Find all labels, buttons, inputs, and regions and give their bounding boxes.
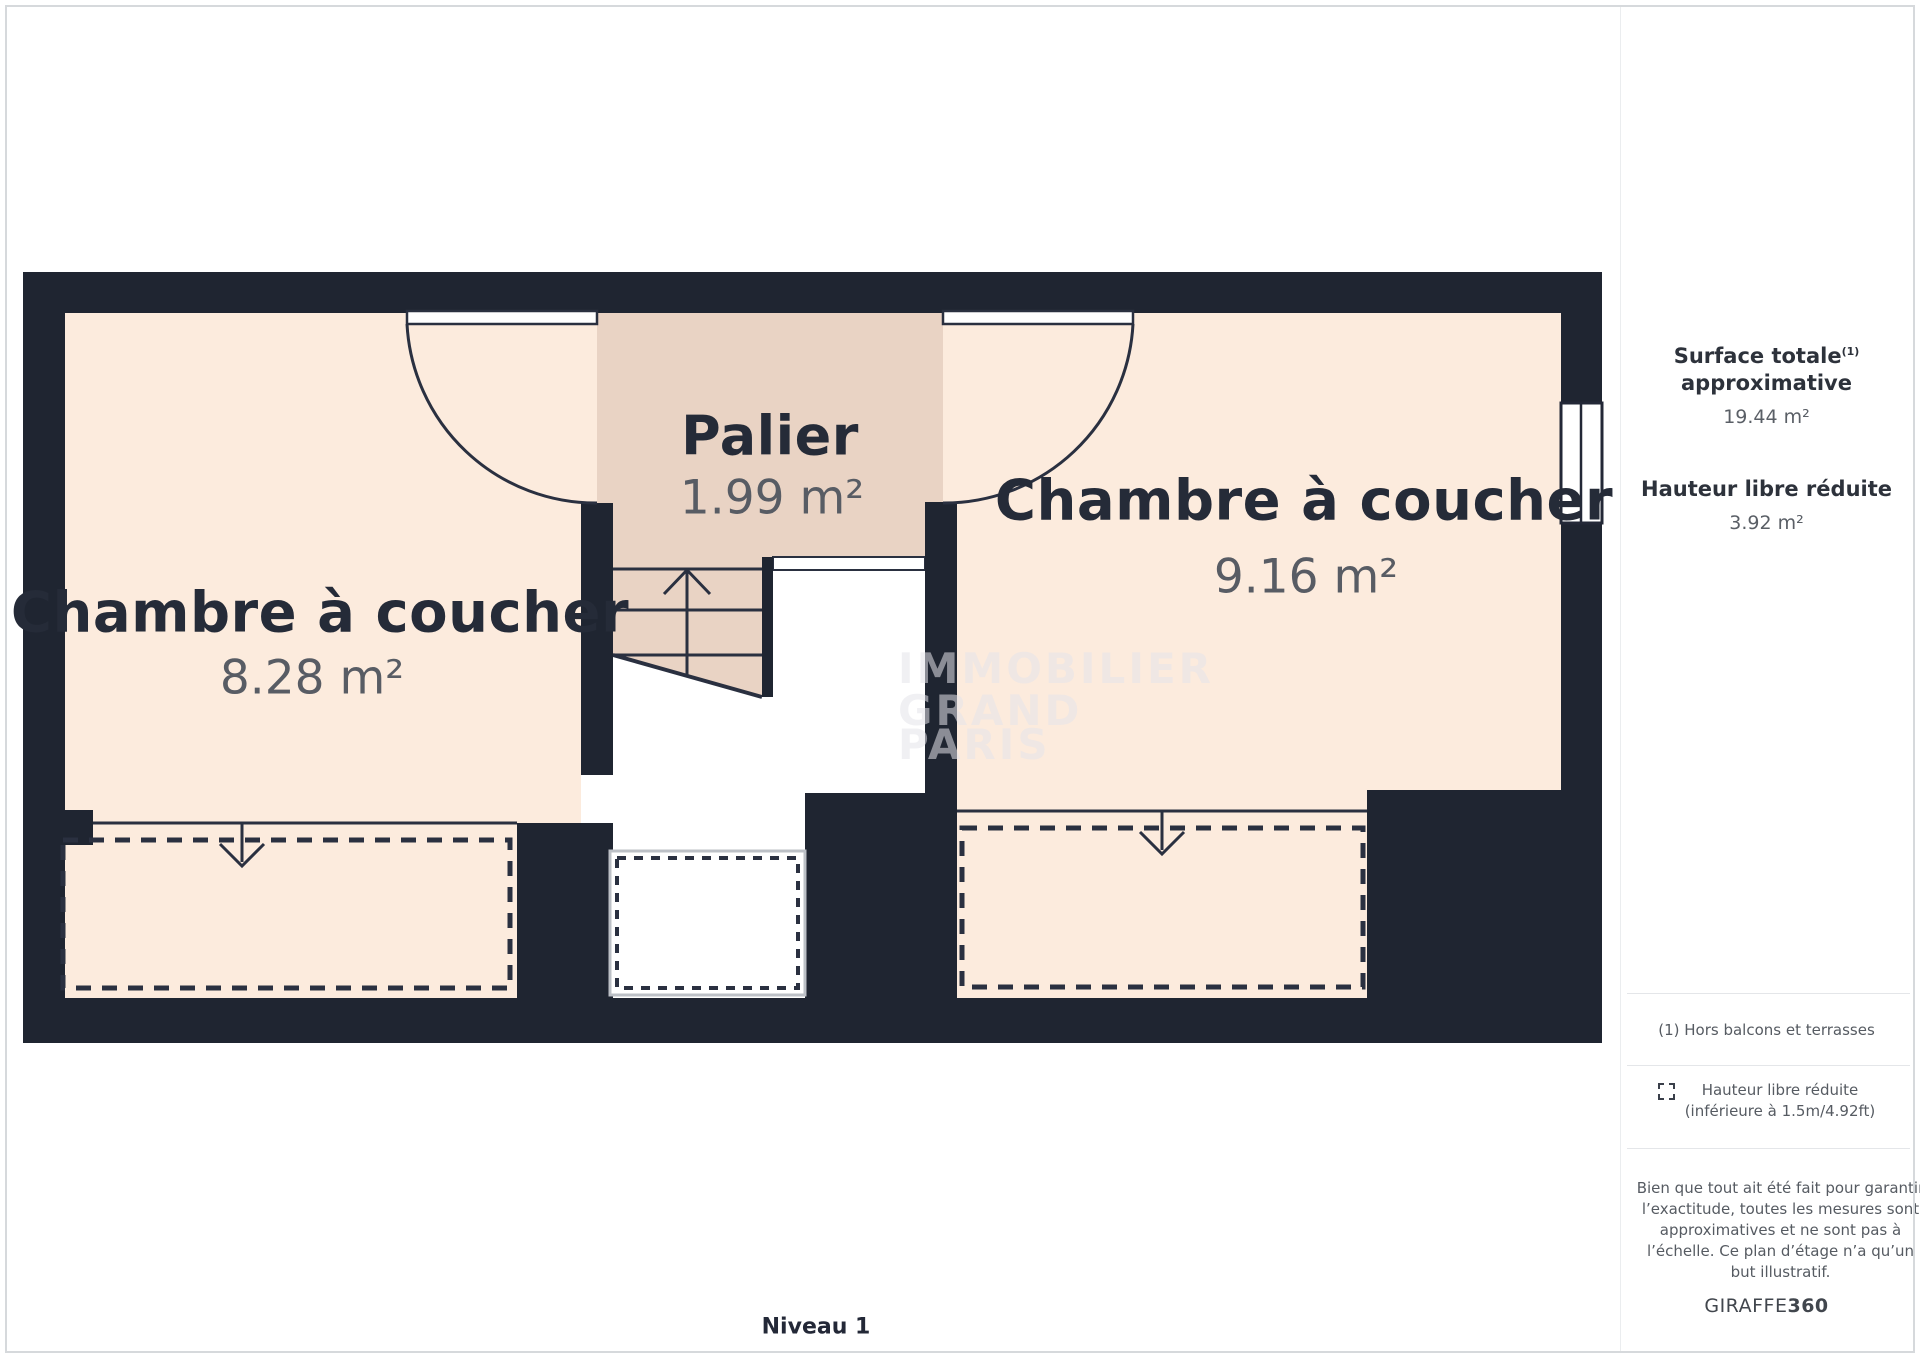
room-area-landing: 1.99 m² <box>680 471 864 526</box>
reduced-height-block: Hauteur libre réduite 3.92 m² <box>1621 476 1912 534</box>
footnote-text: (1) Hors balcons et terrasses <box>1621 1020 1912 1041</box>
surface-total-block: Surface totale(1) approximative 19.44 m² <box>1621 338 1912 428</box>
divider <box>1627 993 1910 994</box>
watermark-text: PARIS <box>898 720 1051 769</box>
legend-label-line1: Hauteur libre réduite <box>1702 1081 1859 1099</box>
floorplan-page: IMMOBILIER GRAND PARIS Chambre à coucher… <box>0 0 1920 1358</box>
brand-name: GIRAFFE <box>1704 1295 1787 1317</box>
wall-left <box>23 272 65 1043</box>
brand-logo: GIRAFFE360 <box>1621 1295 1912 1317</box>
wall-bottom <box>23 998 1602 1043</box>
door-leaf-left <box>407 311 597 324</box>
wall-stairwell-block <box>805 793 957 998</box>
surface-total-value: 19.44 m² <box>1621 406 1912 428</box>
door-leaf-right <box>943 311 1133 324</box>
room-area-bedroom-left: 8.28 m² <box>220 651 404 706</box>
room-label-bedroom-left: Chambre à coucher <box>11 581 629 646</box>
surface-total-title: Surface totale <box>1674 344 1842 368</box>
divider <box>1627 1148 1910 1149</box>
wall-top <box>23 272 1602 313</box>
wall-corner-block <box>1367 790 1602 1043</box>
level-label: Niveau 1 <box>762 1315 871 1340</box>
legend-block: Hauteur libre réduite (inférieure à 1.5m… <box>1621 1080 1912 1122</box>
info-sidebar: Surface totale(1) approximative 19.44 m²… <box>1620 6 1912 1352</box>
disclaimer-text: Bien que tout ait été fait pour garantir… <box>1621 1178 1920 1283</box>
reduced-height-title: Hauteur libre réduite <box>1621 476 1912 503</box>
wall-notch-left <box>517 823 613 998</box>
surface-total-subtitle: approximative <box>1681 371 1852 395</box>
divider <box>1627 1065 1910 1066</box>
room-label-landing: Palier <box>681 405 859 468</box>
wall-stair-right <box>762 557 773 697</box>
legend-label-line2: (inférieure à 1.5m/4.92ft) <box>1685 1102 1876 1120</box>
brand-suffix: 360 <box>1787 1295 1828 1317</box>
room-label-bedroom-right: Chambre à coucher <box>995 469 1613 534</box>
reduced-height-value: 3.92 m² <box>1621 512 1912 534</box>
reduced-height-zone-stairwell <box>610 851 805 995</box>
reduced-height-dashed-icon <box>1658 1083 1675 1100</box>
room-area-bedroom-right: 9.16 m² <box>1214 550 1398 605</box>
surface-footnote-mark: (1) <box>1842 345 1860 358</box>
stair-top-landing-edge <box>773 557 925 570</box>
